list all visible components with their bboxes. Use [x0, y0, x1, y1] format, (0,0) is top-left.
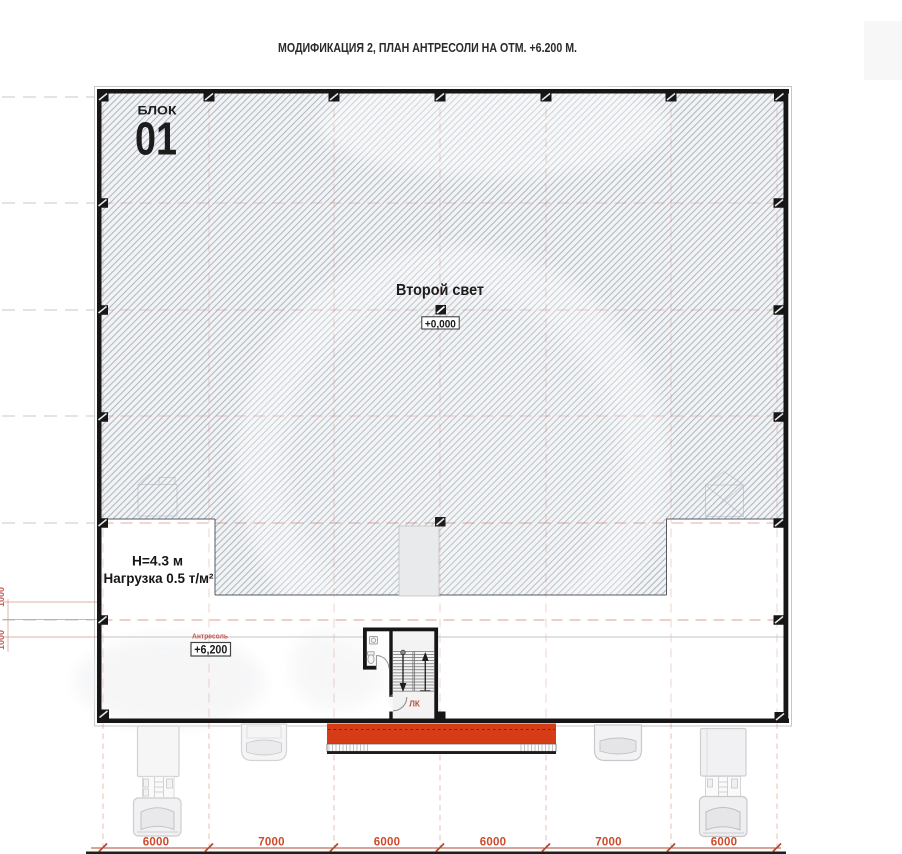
svg-text:ЛК: ЛК — [409, 700, 420, 709]
svg-text:6000: 6000 — [143, 837, 169, 849]
svg-text:Второй свет: Второй свет — [396, 282, 484, 299]
svg-text:1000: 1000 — [0, 630, 6, 650]
svg-text:Нагрузка 0.5 т/м²: Нагрузка 0.5 т/м² — [104, 571, 214, 586]
svg-text:6000: 6000 — [480, 837, 506, 849]
svg-text:01: 01 — [135, 113, 177, 165]
svg-text:+6,200: +6,200 — [194, 645, 227, 657]
svg-text:1000: 1000 — [0, 587, 6, 607]
svg-text:7000: 7000 — [595, 837, 621, 849]
svg-text:6000: 6000 — [374, 837, 400, 849]
svg-text:МОДИФИКАЦИЯ 2, ПЛАН АНТРЕСОЛИ: МОДИФИКАЦИЯ 2, ПЛАН АНТРЕСОЛИ НА ОТМ. +6… — [278, 40, 577, 55]
svg-text:6000: 6000 — [711, 837, 737, 849]
svg-text:+0,000: +0,000 — [425, 318, 456, 330]
svg-text:Антресоль: Антресоль — [192, 634, 229, 641]
svg-text:7000: 7000 — [258, 837, 284, 849]
svg-text:Н=4.3 м: Н=4.3 м — [132, 554, 183, 569]
